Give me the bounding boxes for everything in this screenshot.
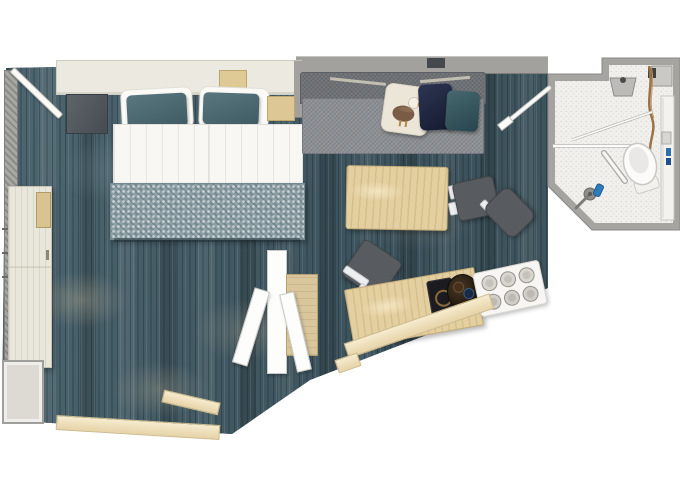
- bathroom-door: [505, 88, 549, 124]
- bed-pillow-teal-right: [202, 92, 259, 126]
- faucet-icon: [620, 77, 626, 83]
- glass: [502, 288, 521, 307]
- duvet-left: [113, 124, 209, 187]
- glass: [521, 284, 540, 303]
- wardrobe-handle: [46, 250, 49, 260]
- foot-blanket: [110, 183, 305, 240]
- toiletry-bottle: [666, 148, 671, 156]
- duvet-right: [208, 124, 303, 187]
- bathroom-door-plate: [498, 116, 513, 130]
- wall-vent: [427, 58, 445, 68]
- entry-cabinet: [66, 94, 108, 134]
- toiletry-bottle: [666, 158, 671, 165]
- safe: [36, 192, 51, 228]
- glass: [499, 270, 518, 289]
- shower-mixer-cap: [588, 192, 592, 196]
- sofa-pillow-teal: [445, 90, 481, 132]
- nightstand-right: [267, 96, 295, 121]
- tissue-box: [662, 132, 671, 144]
- glass: [517, 266, 536, 285]
- bed-base-shadow: [114, 238, 300, 242]
- glass: [480, 274, 499, 293]
- bathroom: [480, 48, 680, 240]
- coffee-table: [345, 165, 448, 231]
- dresser: [2, 360, 44, 424]
- floor-plan-canvas: [0, 0, 680, 491]
